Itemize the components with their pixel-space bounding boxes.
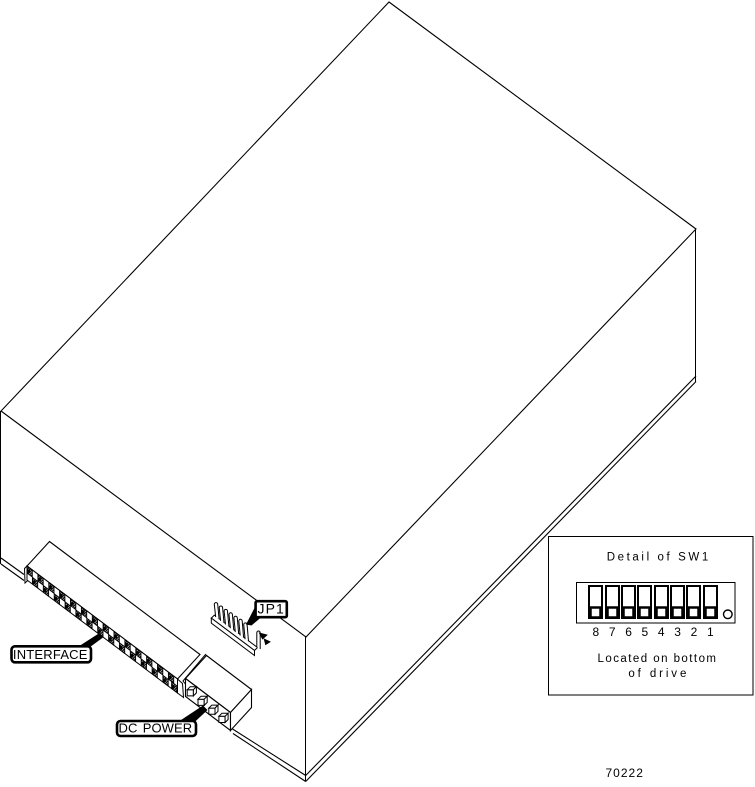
svg-text:Detail of SW1: Detail of SW1 (607, 552, 711, 564)
svg-text:70222: 70222 (606, 766, 644, 780)
svg-text:INTERFACE: INTERFACE (13, 647, 88, 662)
svg-text:7: 7 (609, 625, 616, 639)
svg-text:DC POWER: DC POWER (119, 721, 193, 736)
svg-text:3: 3 (674, 625, 681, 639)
svg-text:2: 2 (691, 625, 698, 639)
svg-text:5: 5 (642, 625, 649, 639)
svg-text:Located on bottom: Located on bottom (598, 653, 718, 665)
svg-text:6: 6 (625, 625, 632, 639)
svg-text:4: 4 (658, 625, 665, 639)
svg-text:8: 8 (593, 625, 600, 639)
svg-text:JP1: JP1 (257, 601, 284, 617)
svg-text:of drive: of drive (628, 668, 689, 680)
svg-text:1: 1 (707, 625, 714, 639)
